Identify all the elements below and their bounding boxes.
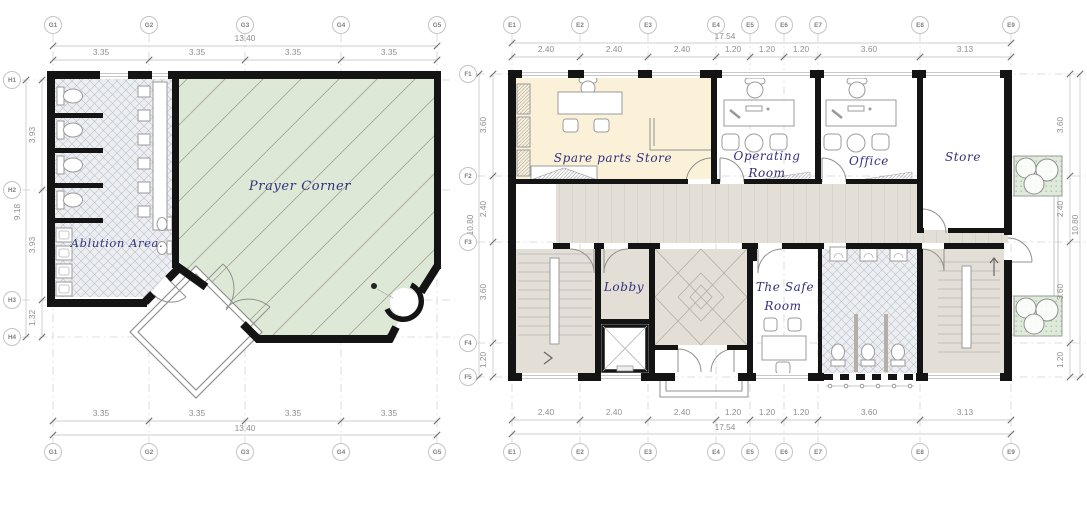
dim-label: 2.40	[674, 407, 691, 417]
ablution-trough	[153, 82, 167, 230]
room-label-operating-1: Operating	[734, 149, 801, 163]
dim-label: 13.40	[235, 33, 256, 43]
grid-label: G5	[433, 449, 442, 456]
dim-label: 3.60	[861, 44, 878, 54]
dim-label: 2.40	[1055, 201, 1065, 218]
dim-label: 3.60	[1055, 284, 1065, 301]
dim-label: 1.20	[793, 407, 810, 417]
basin	[56, 264, 72, 278]
balcony-door	[1008, 238, 1032, 262]
desk	[558, 92, 622, 114]
grid-label: H2	[8, 187, 17, 194]
dim-label: 3.13	[957, 44, 974, 54]
dim-label: 9.18	[12, 204, 22, 221]
dim-label: 1.20	[725, 407, 742, 417]
wc-toilet	[861, 344, 875, 366]
wc-toilet	[891, 344, 905, 366]
grid-label: E6	[780, 449, 788, 456]
grid-label: E4	[712, 22, 720, 29]
grid-label: E3	[644, 22, 652, 29]
dim-label: 3.35	[285, 408, 302, 418]
elevator-door	[617, 366, 633, 371]
grid-label: F2	[464, 173, 472, 180]
dim-label: 2.40	[538, 44, 555, 54]
dim-label: 3.35	[93, 47, 110, 57]
wc-sink	[830, 247, 847, 261]
grid-label: G3	[241, 22, 250, 29]
room-label-prayer-corner: Prayer Corner	[248, 179, 351, 194]
grid-label: F1	[464, 71, 472, 78]
dim-label: 10.80	[1070, 214, 1080, 235]
wc-toilet	[831, 344, 845, 366]
planter-box	[1014, 156, 1062, 196]
dim-label: 3.60	[1055, 117, 1065, 134]
grid-label: F3	[464, 239, 472, 246]
grid-label: E1	[508, 22, 516, 29]
dim-label: 1.20	[759, 407, 776, 417]
dim-label: 3.60	[861, 407, 878, 417]
grid-label: E3	[644, 449, 652, 456]
grid-label: H1	[8, 77, 17, 84]
balcony-planters	[1012, 156, 1062, 336]
dim-label: 13.40	[235, 423, 256, 433]
dim-label: 2.40	[606, 44, 623, 54]
dim-label: 17.54	[715, 422, 736, 432]
dim-label: 1.20	[1055, 352, 1065, 369]
grid-label: E9	[1007, 22, 1015, 29]
dim-label: 1.20	[725, 44, 742, 54]
dim-label: 3.35	[381, 408, 398, 418]
dim-label: 3.35	[189, 47, 206, 57]
floorplan-canvas: 13.40 3.35 3.35 3.35 3.35 3.35 3.35 3.35…	[0, 0, 1087, 510]
grid-label: E8	[916, 449, 924, 456]
grid-label: G2	[145, 22, 154, 29]
basin	[56, 246, 72, 260]
dim-label: 3.60	[478, 284, 488, 301]
grid-label: F4	[464, 340, 472, 347]
room-label-store: Store	[945, 150, 981, 164]
grid-label: G4	[337, 449, 346, 456]
floorplan-page: 13.40 3.35 3.35 3.35 3.35 3.35 3.35 3.35…	[0, 0, 1087, 510]
dim-label: 2.40	[606, 407, 623, 417]
room-label-ablution-area: Ablution Area.	[70, 236, 164, 250]
grid-label: E9	[1007, 449, 1015, 456]
grid-label: E1	[508, 449, 516, 456]
right-plan: 17.54 2.40 2.40 2.40 1.20 1.20 1.20 3.60…	[460, 17, 1087, 461]
basin	[56, 228, 72, 242]
desk	[762, 336, 806, 360]
grid-label: E2	[576, 449, 584, 456]
grid-label: G4	[337, 22, 346, 29]
qibla-dot	[371, 283, 377, 289]
grid-label: G1	[49, 449, 58, 456]
wc-sink	[860, 247, 877, 261]
grid-label: E5	[746, 22, 754, 29]
entrance-porch	[660, 381, 748, 397]
left-plan: 13.40 3.35 3.35 3.35 3.35 3.35 3.35 3.35…	[4, 17, 456, 461]
room-label-lobby: Lobby	[603, 280, 644, 294]
dim-label: 3.35	[381, 47, 398, 57]
room-label-safe-1: The Safe	[756, 280, 814, 294]
dim-label: 1.32	[27, 310, 37, 327]
room-label-office: Office	[849, 154, 889, 168]
grid-label: E5	[746, 449, 754, 456]
grid-label: G5	[433, 22, 442, 29]
dim-label: 1.20	[793, 44, 810, 54]
grid-label: G1	[49, 22, 58, 29]
wc-sink	[890, 247, 907, 261]
grid-label: E7	[814, 449, 822, 456]
grid-label: F5	[464, 374, 472, 381]
dim-label: 3.35	[189, 408, 206, 418]
grid-label: E7	[814, 22, 822, 29]
room-label-operating-2: Room	[747, 166, 785, 180]
grid-label: H4	[8, 334, 17, 341]
dim-label: 3.93	[27, 127, 37, 144]
dim-label: 3.13	[957, 407, 974, 417]
room-label-spare-parts-store: Spare parts Store	[554, 151, 672, 165]
basin	[56, 282, 72, 296]
dim-label: 3.35	[285, 47, 302, 57]
dim-label: 1.20	[759, 44, 776, 54]
grid-label: H3	[8, 297, 17, 304]
dim-label: 1.20	[478, 352, 488, 369]
grid-label: E8	[916, 22, 924, 29]
room-label-safe-2: Room	[763, 299, 801, 313]
dim-label: 2.40	[478, 201, 488, 218]
grid-label: E4	[712, 449, 720, 456]
grid-label: G2	[145, 449, 154, 456]
dim-label: 3.93	[27, 237, 37, 254]
grid-label: E6	[780, 22, 788, 29]
sink	[157, 218, 167, 231]
dim-label: 2.40	[674, 44, 691, 54]
dim-label: 2.40	[538, 407, 555, 417]
planter-box	[1014, 296, 1062, 336]
dim-label: 10.80	[465, 214, 475, 235]
grid-label: E2	[576, 22, 584, 29]
dim-label: 3.60	[478, 117, 488, 134]
grid-label: G3	[241, 449, 250, 456]
dim-label: 3.35	[93, 408, 110, 418]
